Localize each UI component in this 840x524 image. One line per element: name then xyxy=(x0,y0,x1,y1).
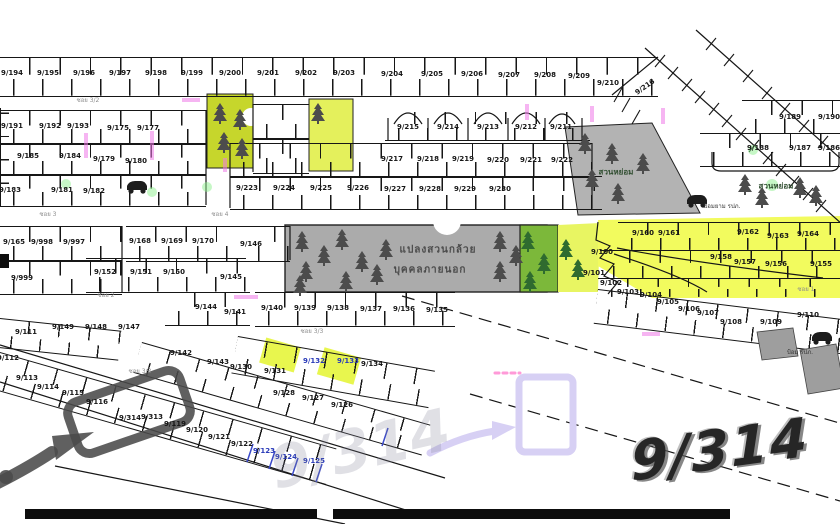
plot-label: 9/221 xyxy=(520,156,542,164)
plot-label: 9/127 xyxy=(302,394,324,402)
plot-label: 9/180 xyxy=(125,157,147,165)
plot-label: 9/124 xyxy=(275,453,297,461)
area-label: สวนหย่อม xyxy=(599,166,634,179)
plot-label: 9/156 xyxy=(765,260,787,268)
plot-label: 9/188 xyxy=(747,144,769,152)
plot-label: 9/132 xyxy=(303,357,325,365)
plot-label: 9/192 xyxy=(39,122,61,130)
plot-label: 9/202 xyxy=(295,69,317,77)
road-label: ซอย 2 xyxy=(98,290,115,300)
plot-label: 9/183 xyxy=(0,186,21,194)
plot-label: 9/179 xyxy=(93,155,115,163)
plot-label: 9/138 xyxy=(327,304,349,312)
plot-label: 9/187 xyxy=(789,144,811,152)
plot-label: 9/125 xyxy=(303,457,325,465)
plot-label: 9/189 xyxy=(779,113,801,121)
plot-label: 9/115 xyxy=(62,389,84,397)
plot-label: 9/198 xyxy=(145,69,167,77)
plot-label: 9/205 xyxy=(421,70,443,78)
plot-label: 9/163 xyxy=(767,232,789,240)
plot-label: 9/116 xyxy=(86,398,108,406)
plot-label: 9/112 xyxy=(0,354,19,362)
plot-label: 9/169 xyxy=(161,237,183,245)
plot-label: 9/123 xyxy=(253,447,275,455)
plot-label: 9/135 xyxy=(426,306,448,314)
plot-label: 9/184 xyxy=(59,152,81,160)
plot-label: 9/217 xyxy=(381,155,403,163)
plot-label: 9/160 xyxy=(632,229,654,237)
plot-label: 9/220 xyxy=(487,156,509,164)
road-label: ซอย 3/3 xyxy=(129,366,152,376)
road-label: ซอย 3/3 xyxy=(301,326,324,336)
plot-label: 9/186 xyxy=(818,144,840,152)
plot-label: 9/195 xyxy=(37,69,59,77)
plot-label: 9/139 xyxy=(294,304,316,312)
plot-label: 9/157 xyxy=(734,258,756,266)
plot-label: 9/149 xyxy=(52,323,74,331)
plot-label: 9/211 xyxy=(550,123,572,131)
plot-label: 9/143 xyxy=(207,358,229,366)
plot-label: 9/130 xyxy=(230,363,252,371)
plot-label: 9/161 xyxy=(658,229,680,237)
plot-label: 9/113 xyxy=(16,374,38,382)
plot-label: 9/100 xyxy=(591,248,613,256)
plot-label: 9/216 xyxy=(634,77,657,96)
plot-label: 9/227 xyxy=(384,185,406,193)
plot-label: 9/200 xyxy=(219,69,241,77)
plot-label: 9/223 xyxy=(236,184,258,192)
plot-label: 9/228 xyxy=(419,185,441,193)
plot-label: 9/111 xyxy=(15,328,37,336)
plot-label: 9/196 xyxy=(73,69,95,77)
plot-label: 9/222 xyxy=(551,156,573,164)
plot-label: 9/142 xyxy=(170,349,192,357)
plot-label: 9/150 xyxy=(163,268,185,276)
plot-label: 9/197 xyxy=(109,69,131,77)
plot-label: 9/136 xyxy=(393,305,415,313)
plot-label: 9/175 xyxy=(107,124,129,132)
plot-label: 9/170 xyxy=(192,237,214,245)
plot-label: 9/201 xyxy=(257,69,279,77)
plot-label: 9/224 xyxy=(273,184,295,192)
plot-label: 9/145 xyxy=(220,273,242,281)
plot-label: 9/121 xyxy=(208,433,230,441)
area-label: บุคคลภายนอก xyxy=(394,263,467,278)
plot-label: 9/105 xyxy=(657,298,679,306)
plot-label: 9/203 xyxy=(333,69,355,77)
plot-label: 9/147 xyxy=(118,323,140,331)
plot-label: 9/314 xyxy=(119,414,141,422)
plot-label: 9/101 xyxy=(583,269,605,277)
plot-label: 9/148 xyxy=(85,323,107,331)
road-label: ซอย 3 xyxy=(40,209,57,219)
plot-label: 9/219 xyxy=(452,155,474,163)
plot-label: 9/212 xyxy=(515,123,537,131)
area-label: ป้อมยาม รปภ. xyxy=(703,201,740,211)
plot-label: 9/199 xyxy=(181,69,203,77)
plot-label: 9/208 xyxy=(534,71,556,79)
plot-label: 9/191 xyxy=(1,122,23,130)
plot-label: 9/218 xyxy=(417,155,439,163)
plot-label: 9/119 xyxy=(164,420,186,428)
plot-label: 9/206 xyxy=(461,70,483,78)
plot-label: 9/998 xyxy=(31,238,53,246)
plot-label: 9/162 xyxy=(737,228,759,236)
road-label: ซอย 4 xyxy=(212,209,229,219)
plot-label: 9/137 xyxy=(360,305,382,313)
plot-label: 9/128 xyxy=(273,389,295,397)
plot-label: 9/193 xyxy=(67,122,89,130)
plot-label: 9/194 xyxy=(1,69,23,77)
plot-label: 9/164 xyxy=(797,230,819,238)
land-plot-map: 9/1949/1959/1969/1979/1989/1999/2009/201… xyxy=(0,0,840,524)
plot-label: 9/185 xyxy=(17,152,39,160)
plot-label: 9/165 xyxy=(3,238,25,246)
plot-label: 9/122 xyxy=(231,440,253,448)
plot-label: 9/134 xyxy=(361,360,383,368)
plot-label: 9/177 xyxy=(137,124,159,132)
plot-label: 9/108 xyxy=(720,318,742,326)
plot-label: 9/210 xyxy=(597,79,619,87)
plot-label: 9/229 xyxy=(454,185,476,193)
plot-label: 9/168 xyxy=(129,237,151,245)
plot-label: 9/997 xyxy=(63,238,85,246)
plot-label: 9/151 xyxy=(130,268,152,276)
plot-label: 9/155 xyxy=(810,260,832,268)
plot-label: 9/141 xyxy=(224,308,246,316)
plot-label: 9/126 xyxy=(331,401,353,409)
plot-label: 9/207 xyxy=(498,71,520,79)
plot-label: 9/107 xyxy=(697,309,719,317)
plot-label: 9/102 xyxy=(600,279,622,287)
plot-label: 9/213 xyxy=(477,123,499,131)
plot-label: 9/131 xyxy=(264,367,286,375)
plot-label: 9/230 xyxy=(489,185,511,193)
plot-label: 9/182 xyxy=(83,187,105,195)
plot-label: 9/226 xyxy=(347,184,369,192)
plot-label: 9/181 xyxy=(51,186,73,194)
plot-label: 9/214 xyxy=(437,123,459,131)
road-label: ซอย 1 xyxy=(798,284,815,294)
plot-label: 9/158 xyxy=(710,253,732,261)
area-label: แปลงสวนกล้วย xyxy=(399,243,476,258)
plot-label: 9/146 xyxy=(240,240,262,248)
plot-label: 9/114 xyxy=(37,383,59,391)
plot-label: 9/140 xyxy=(261,304,283,312)
plot-label: 9/313 xyxy=(141,413,163,421)
plot-label: 9/120 xyxy=(186,426,208,434)
plot-label: 9/209 xyxy=(568,72,590,80)
plot-label: 9/204 xyxy=(381,70,403,78)
plot-label: 9/152 xyxy=(94,268,116,276)
plot-label: 9/999 xyxy=(11,274,33,282)
plot-label: 9/103 xyxy=(617,288,639,296)
plot-label: 9/190 xyxy=(818,113,840,121)
plot-label: 9/225 xyxy=(310,184,332,192)
plot-label: 9/110 xyxy=(797,311,819,319)
plot-label: 9/144 xyxy=(195,303,217,311)
area-label: สวนหย่อม xyxy=(759,180,794,193)
area-label: ป้อม รปภ. xyxy=(787,347,813,357)
plot-label: 9/109 xyxy=(760,318,782,326)
plot-label: 9/133 xyxy=(337,357,359,365)
plot-label: 9/215 xyxy=(397,123,419,131)
road-label: ซอย 3/2 xyxy=(77,95,100,105)
